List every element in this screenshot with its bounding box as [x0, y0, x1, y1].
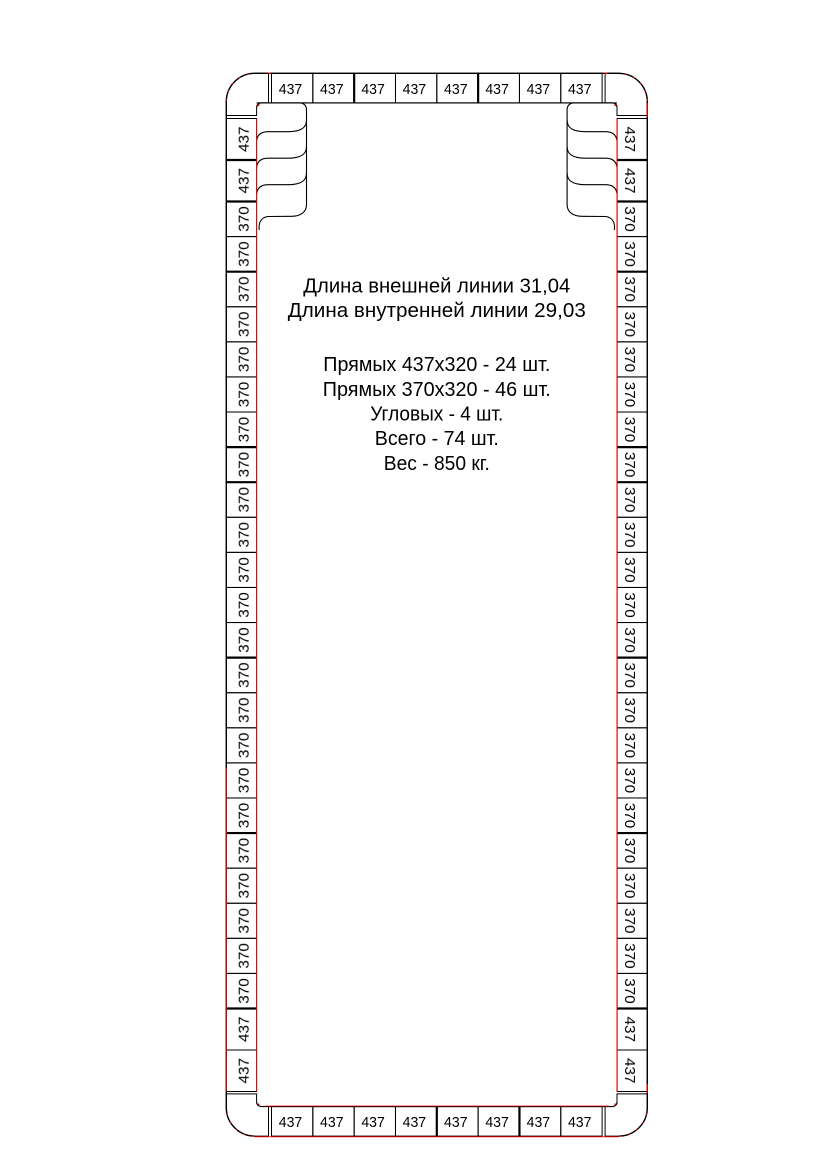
svg-text:437: 437	[236, 1017, 253, 1043]
svg-text:437: 437	[527, 81, 551, 98]
svg-text:370: 370	[236, 662, 253, 688]
svg-text:370: 370	[236, 733, 253, 759]
svg-text:437: 437	[621, 1017, 638, 1043]
svg-text:370: 370	[621, 206, 638, 232]
svg-text:370: 370	[236, 838, 253, 864]
svg-text:370: 370	[621, 978, 638, 1004]
svg-text:370: 370	[236, 943, 253, 969]
svg-text:437: 437	[621, 1058, 638, 1084]
svg-text:370: 370	[621, 592, 638, 618]
svg-text:437: 437	[361, 81, 385, 98]
svg-text:370: 370	[236, 873, 253, 899]
svg-text:437: 437	[361, 1114, 385, 1131]
svg-text:370: 370	[236, 978, 253, 1004]
svg-text:370: 370	[236, 276, 253, 302]
svg-text:370: 370	[621, 312, 638, 338]
svg-text:437: 437	[527, 1114, 551, 1131]
svg-text:370: 370	[621, 276, 638, 302]
svg-text:370: 370	[236, 698, 253, 724]
svg-text:370: 370	[621, 487, 638, 513]
svg-text:Длина внутренней линии 29,03: Длина внутренней линии 29,03	[288, 299, 586, 322]
svg-text:370: 370	[236, 417, 253, 443]
svg-text:370: 370	[621, 382, 638, 408]
svg-text:370: 370	[236, 347, 253, 373]
svg-text:370: 370	[236, 206, 253, 232]
svg-text:370: 370	[621, 873, 638, 899]
svg-text:Угловых - 4 шт.: Угловых - 4 шт.	[370, 403, 503, 426]
svg-text:370: 370	[236, 312, 253, 338]
svg-text:370: 370	[236, 592, 253, 618]
svg-text:437: 437	[444, 81, 468, 98]
svg-text:437: 437	[236, 127, 253, 153]
svg-text:370: 370	[621, 557, 638, 583]
svg-text:370: 370	[236, 487, 253, 513]
svg-text:437: 437	[621, 168, 638, 194]
svg-text:437: 437	[279, 1114, 303, 1131]
svg-text:437: 437	[568, 1114, 592, 1131]
svg-text:437: 437	[320, 81, 344, 98]
svg-text:370: 370	[621, 698, 638, 724]
svg-text:437: 437	[279, 81, 303, 98]
svg-text:370: 370	[236, 908, 253, 934]
svg-text:437: 437	[621, 127, 638, 153]
svg-text:370: 370	[236, 557, 253, 583]
svg-text:370: 370	[621, 347, 638, 373]
svg-text:Прямых 437х320 - 24 шт.: Прямых 437х320 - 24 шт.	[323, 353, 550, 376]
svg-text:437: 437	[403, 1114, 427, 1131]
svg-text:370: 370	[621, 241, 638, 267]
svg-text:437: 437	[320, 1114, 344, 1131]
svg-text:437: 437	[403, 81, 427, 98]
svg-text:Вес - 850 кг.: Вес - 850 кг.	[384, 452, 490, 475]
svg-text:Всего - 74 шт.: Всего - 74 шт.	[375, 427, 499, 450]
svg-text:370: 370	[236, 522, 253, 548]
svg-text:Длина внешней линии 31,04: Длина внешней линии 31,04	[303, 275, 570, 298]
svg-text:370: 370	[621, 768, 638, 794]
svg-text:370: 370	[621, 803, 638, 829]
svg-text:Прямых 370х320 - 46 шт.: Прямых 370х320 - 46 шт.	[323, 378, 551, 401]
svg-text:437: 437	[236, 168, 253, 194]
svg-text:370: 370	[236, 627, 253, 653]
svg-text:437: 437	[444, 1114, 468, 1131]
svg-text:370: 370	[621, 417, 638, 443]
svg-text:437: 437	[568, 81, 592, 98]
svg-text:370: 370	[236, 803, 253, 829]
svg-text:370: 370	[621, 733, 638, 759]
svg-text:370: 370	[236, 768, 253, 794]
svg-text:370: 370	[621, 943, 638, 969]
svg-text:370: 370	[236, 241, 253, 267]
svg-text:370: 370	[621, 627, 638, 653]
svg-text:437: 437	[485, 1114, 509, 1131]
svg-text:370: 370	[236, 382, 253, 408]
svg-text:370: 370	[621, 908, 638, 934]
svg-text:370: 370	[621, 662, 638, 688]
svg-text:370: 370	[621, 452, 638, 478]
svg-text:370: 370	[621, 522, 638, 548]
svg-text:370: 370	[621, 838, 638, 864]
svg-text:370: 370	[236, 452, 253, 478]
svg-text:437: 437	[485, 81, 509, 98]
svg-text:437: 437	[236, 1058, 253, 1084]
